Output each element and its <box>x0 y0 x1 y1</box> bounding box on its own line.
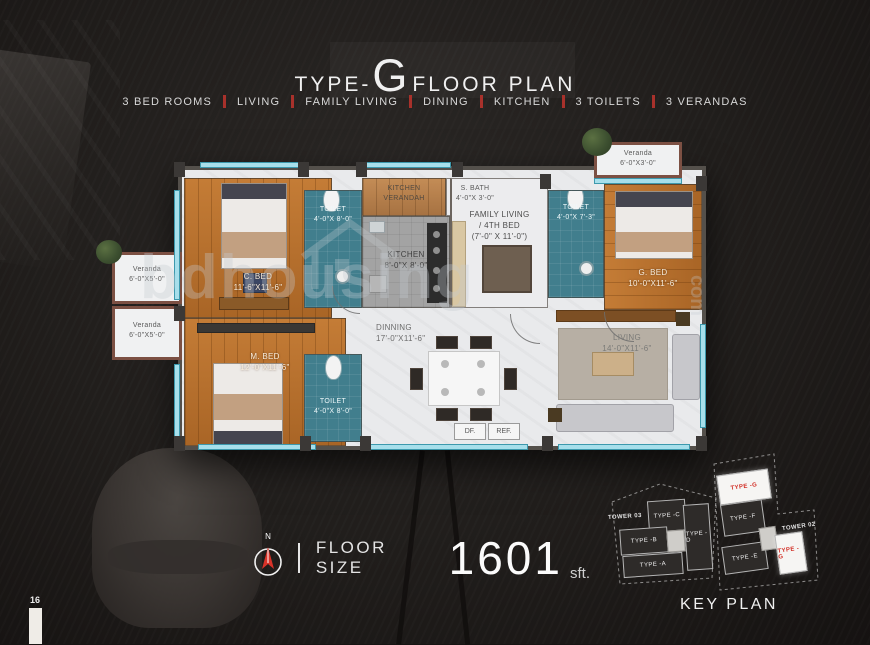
rug-icon <box>482 245 532 293</box>
unit-label: TYPE -E <box>732 553 759 563</box>
room-name: TOILET <box>305 397 361 407</box>
feature-separator <box>223 95 226 108</box>
chair-icon <box>504 368 517 390</box>
room-name: TOILET <box>549 203 603 213</box>
unit-label: TYPE -D <box>686 530 711 544</box>
feature-item: LIVING <box>237 96 280 108</box>
plate <box>441 388 449 396</box>
column <box>174 436 185 451</box>
compass-north-letter: N <box>265 532 271 541</box>
column <box>696 436 707 451</box>
background-armchair-seat <box>108 540 248 574</box>
coffee-table-icon <box>592 352 634 376</box>
room-name-2: / 4TH BED <box>452 220 547 231</box>
side-table-icon <box>548 408 562 422</box>
plate <box>441 360 449 368</box>
room-dims: 6'-0"X5'-0" <box>115 331 179 341</box>
window <box>365 162 451 168</box>
background-armchair-silhouette <box>92 448 262 628</box>
feature-item: KITCHEN <box>494 96 551 108</box>
dining-table-icon <box>428 351 500 406</box>
room-dims: 4'-0"X 3'-0" <box>447 194 503 204</box>
feature-item: 3 TOILETS <box>576 96 641 108</box>
floor-size-row: N FLOOR SIZE 1601 sft. <box>250 525 590 591</box>
room-veranda-left-top: Veranda 6'-0"X5'-0" <box>112 252 182 304</box>
bed-icon <box>615 191 693 259</box>
window <box>174 190 180 300</box>
ref-box: REF. <box>488 423 520 440</box>
unit-label: TYPE -B <box>631 537 657 545</box>
feature-separator <box>480 95 483 108</box>
page-number: 16 <box>27 595 43 605</box>
room-toilet-right: TOILET 4'-0"X 7'-3" <box>548 190 604 298</box>
column <box>174 162 185 177</box>
bed-icon <box>221 183 287 269</box>
room-name: LIVING <box>548 332 706 343</box>
room-dims: 12'-0"X11'-6" <box>185 362 345 373</box>
blanket <box>214 394 282 420</box>
room-name-2: VERANDAH <box>363 194 445 204</box>
window <box>368 444 528 450</box>
watermark-house-icon <box>295 215 405 295</box>
window <box>558 444 690 450</box>
df-box: DF. <box>454 423 486 440</box>
burner <box>433 231 440 238</box>
column <box>452 162 463 177</box>
plate <box>477 360 485 368</box>
unit-label: TYPE -G <box>777 545 804 561</box>
pillow <box>616 192 692 207</box>
df-label: DF. <box>465 428 476 435</box>
blanket <box>222 232 286 258</box>
room-name: TOILET <box>305 205 361 215</box>
unit-label: TYPE -C <box>654 512 681 520</box>
window <box>174 364 180 438</box>
dresser-icon <box>219 297 289 310</box>
chair-icon <box>436 408 458 421</box>
page-number-bar <box>29 608 42 644</box>
room-name: M. BED <box>185 351 345 362</box>
burner <box>433 285 440 292</box>
room-dims: 6'-0"X3'-0" <box>597 159 679 169</box>
feature-item: FAMILY LIVING <box>305 96 398 108</box>
column <box>540 174 551 189</box>
unit-label: TYPE -G <box>730 482 757 492</box>
column <box>542 436 553 451</box>
chair-icon <box>410 368 423 390</box>
sofa-icon <box>556 404 674 432</box>
column <box>696 176 707 191</box>
floor-size-divider <box>298 543 300 573</box>
title-prefix: TYPE- <box>295 73 372 97</box>
window <box>700 324 706 428</box>
feature-list: 3 BED ROOMS LIVING FAMILY LIVING DINING … <box>0 95 870 108</box>
stair-core <box>666 529 685 552</box>
room-dims: 4'-0"X 7'-3" <box>549 213 603 223</box>
room-name: Veranda <box>115 321 179 331</box>
plant-icon <box>582 128 612 156</box>
feature-item: 3 BED ROOMS <box>122 96 212 108</box>
floor-size-unit: sft. <box>570 565 590 591</box>
feature-separator <box>291 95 294 108</box>
floor-size-value: 1601 <box>449 531 563 585</box>
dresser-icon <box>197 323 315 333</box>
column <box>356 162 367 177</box>
chair-icon <box>436 336 458 349</box>
room-kitchen-verandah: KITCHEN VERANDAH <box>362 178 446 216</box>
room-veranda-left-bottom: Veranda 6'-0"X5'-0" <box>112 306 182 360</box>
column <box>300 436 311 451</box>
chair-icon <box>470 336 492 349</box>
room-dims: 14'-0"X11'-6" <box>548 343 706 354</box>
feature-separator <box>652 95 655 108</box>
room-dims: (7'-0" X 11'-0") <box>452 231 547 242</box>
column <box>298 162 309 177</box>
room-name: DINNING <box>376 322 425 333</box>
plate <box>477 388 485 396</box>
window <box>594 178 682 184</box>
room-dims: 6'-0"X5'-0" <box>115 275 179 285</box>
title-suffix: FLOOR PLAN <box>412 73 575 97</box>
room-name: Veranda <box>115 265 179 275</box>
key-plan-unit-type-g-right: TYPE -G <box>774 531 807 575</box>
window <box>200 162 308 168</box>
floor-plan: Veranda 6'-0"X3'-0" Veranda 6'-0"X5'-0" … <box>110 138 724 456</box>
feature-separator <box>409 95 412 108</box>
feature-separator <box>562 95 565 108</box>
feature-item: DINING <box>423 96 469 108</box>
key-plan-unit-type-a: TYPE -A <box>622 552 683 578</box>
ref-label: REF. <box>496 428 511 435</box>
plant-icon <box>96 240 122 264</box>
column <box>174 306 185 321</box>
window <box>198 444 316 450</box>
key-plan-unit-type-d: TYPE -D <box>683 503 714 571</box>
floor-size-label: FLOOR SIZE <box>316 538 431 578</box>
room-name: S. BATH <box>447 184 503 194</box>
room-name: Veranda <box>597 149 679 159</box>
unit-label: TYPE -A <box>640 561 666 569</box>
bed-icon <box>213 363 283 446</box>
room-dims: 4'-0"X 8'-0" <box>305 407 361 417</box>
pillow <box>222 184 286 199</box>
column <box>360 436 371 451</box>
feature-item: 3 VERANDAS <box>666 96 748 108</box>
room-dims: 17'-0"X11'-6" <box>376 333 425 344</box>
basin-icon <box>579 261 594 276</box>
room-name: KITCHEN <box>363 184 445 194</box>
key-plan: TOWER 03 TYPE -C TYPE -B TYPE -D TYPE -A… <box>598 448 860 628</box>
watermark-suffix: com <box>685 275 708 316</box>
unit-label: TYPE -F <box>730 513 756 523</box>
blanket <box>616 232 692 252</box>
north-compass-icon: N <box>250 534 286 582</box>
key-plan-unit-type-b: TYPE -B <box>619 526 669 555</box>
brochure-page: TYPE- G FLOOR PLAN 3 BED ROOMS LIVING FA… <box>0 0 870 644</box>
chair-icon <box>470 408 492 421</box>
room-name: FAMILY LIVING <box>452 209 547 220</box>
key-plan-title: KEY PLAN <box>598 596 860 614</box>
dining-set <box>408 336 520 422</box>
